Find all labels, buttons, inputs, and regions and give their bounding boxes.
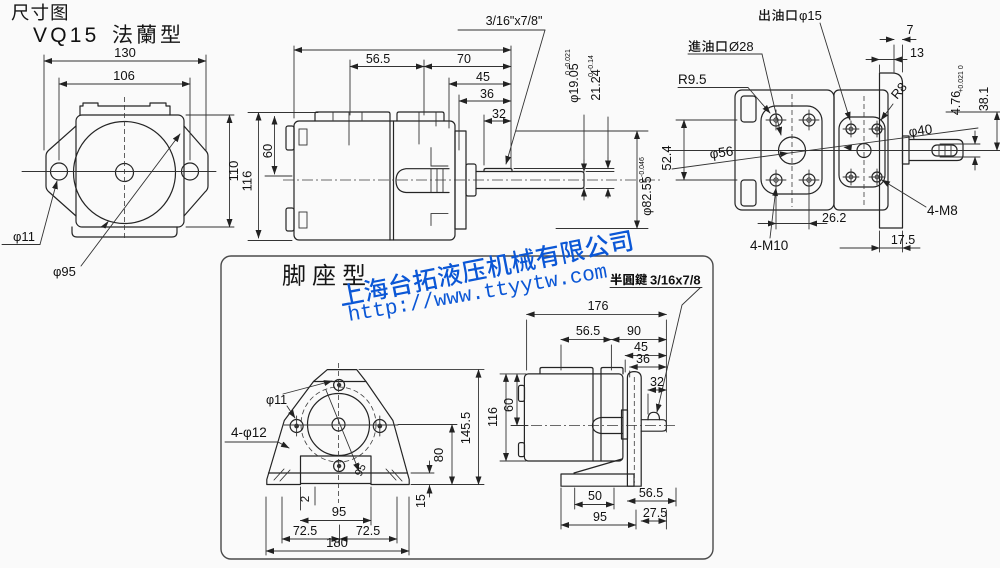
svg-text:56.5: 56.5 [576,324,600,338]
svg-text:32: 32 [492,107,506,121]
svg-text:R9.5: R9.5 [678,72,707,87]
svg-text:180: 180 [326,535,348,550]
svg-text:116: 116 [486,407,500,427]
svg-text:95: 95 [593,510,607,524]
svg-text:72.5: 72.5 [293,524,317,538]
svg-text:27.5: 27.5 [643,506,667,520]
svg-text:145.5: 145.5 [458,412,473,445]
svg-text:φ11: φ11 [13,229,35,244]
svg-text:17.5: 17.5 [891,233,915,247]
svg-text:60: 60 [502,398,516,412]
svg-text:95: 95 [353,462,369,478]
svg-text:0 -0.046: 0 -0.046 [639,157,646,183]
svg-text:φ56: φ56 [709,143,735,161]
svg-text:φ95: φ95 [53,264,76,279]
svg-text:116: 116 [240,171,255,192]
svg-text:+0.021 0: +0.021 0 [958,65,965,93]
svg-text:4-M8: 4-M8 [927,203,958,218]
svg-text:R8: R8 [888,80,910,102]
svg-text:26.2: 26.2 [822,211,846,225]
svg-text:176: 176 [588,299,609,313]
svg-text:3/16"x7/8": 3/16"x7/8" [486,14,543,28]
svg-text:4-φ12: 4-φ12 [231,425,267,440]
svg-text:130: 130 [114,45,136,60]
svg-text:106: 106 [113,68,135,83]
svg-text:95: 95 [332,504,346,519]
svg-text:32: 32 [650,375,664,389]
svg-text:VQ15: VQ15 [33,24,100,47]
svg-text:60: 60 [260,144,275,158]
svg-text:φ40: φ40 [908,121,934,139]
svg-text:4.76: 4.76 [949,91,963,115]
svg-text:0 -0.14: 0 -0.14 [588,55,595,77]
svg-text:7: 7 [907,23,914,37]
svg-text:38.1: 38.1 [977,87,991,111]
svg-text:80: 80 [431,448,446,462]
svg-text:45: 45 [476,70,490,84]
svg-text:70: 70 [457,52,471,66]
svg-text:Ø28: Ø28 [729,39,754,54]
svg-text:4-M10: 4-M10 [750,238,788,253]
svg-text:72.5: 72.5 [356,524,380,538]
svg-text:36: 36 [480,87,494,101]
svg-text:90: 90 [627,324,641,338]
svg-text:36: 36 [636,352,650,366]
svg-text:φ15: φ15 [799,8,822,23]
svg-text:52.4: 52.4 [659,145,674,170]
svg-text:15: 15 [414,494,428,508]
svg-text:0 -0.021: 0 -0.021 [565,49,572,75]
svg-text:56.5: 56.5 [366,52,390,66]
svg-text:56.5: 56.5 [639,486,663,500]
svg-text:2: 2 [300,496,312,502]
svg-text:13: 13 [910,46,924,60]
svg-text:50: 50 [588,489,602,503]
svg-text:3/16x7/8: 3/16x7/8 [650,273,701,288]
svg-text:φ11: φ11 [266,393,287,407]
